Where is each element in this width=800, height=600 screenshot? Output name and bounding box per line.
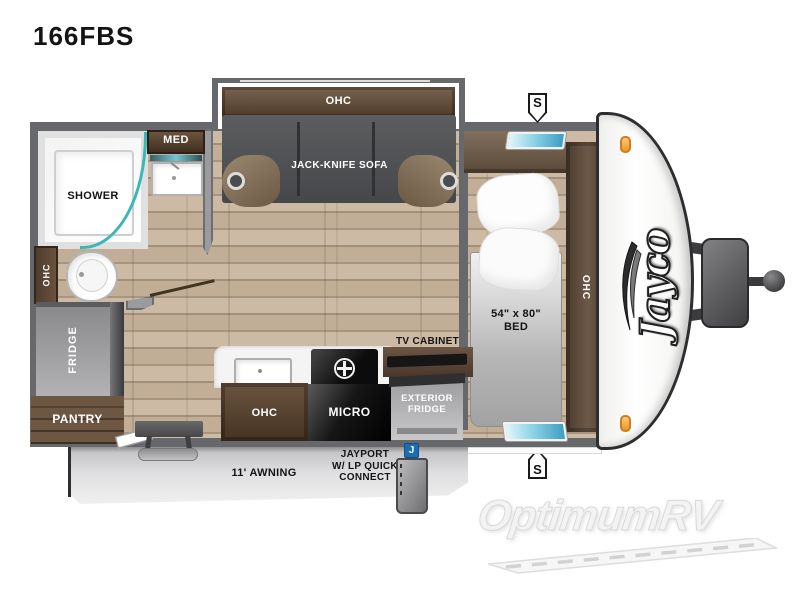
ohc-bath-cabinet: OHC	[34, 246, 58, 304]
watermark-text: OptimumRV	[475, 492, 796, 541]
wall-top-right	[465, 122, 610, 131]
page-title: 166FBS	[33, 22, 134, 52]
pantry-label: PANTRY	[31, 413, 124, 427]
speaker-icon-top: S	[528, 93, 547, 123]
marker-light-top-icon	[620, 136, 631, 153]
bed-pillow-bottom	[477, 226, 560, 292]
slideout-trim	[240, 80, 430, 82]
tv-cabinet-label: TV CABINET	[385, 336, 470, 348]
med-label: MED	[147, 134, 205, 147]
exterior-fridge-line2: FRIDGE	[391, 405, 463, 416]
sofa-seam-left	[297, 122, 300, 196]
entry-step-platform	[135, 421, 203, 437]
jayco-logo: Jayco	[628, 198, 684, 370]
sofa-grommet-right-icon	[440, 172, 458, 190]
window-bottom	[503, 422, 568, 441]
floorplan-canvas: 166FBS SHOWER MED OHC FRIDGE PANTRY OHC	[0, 0, 800, 600]
jayport-label: JAYPORT W/ LP QUICK CONNECT	[328, 449, 402, 484]
ohc-bath-label: OHC	[41, 264, 51, 287]
sofa-grommet-left-icon	[227, 172, 245, 190]
watermark-road-icon	[488, 538, 778, 579]
bed-label: 54" x 80" BED	[470, 308, 562, 333]
hitch-ball-icon	[763, 270, 785, 292]
jayport-line3: CONNECT	[328, 472, 402, 484]
bed-word-label: BED	[470, 321, 562, 334]
fridge-label-wrap: FRIDGE	[36, 302, 110, 398]
exterior-fridge-label: EXTERIOR FRIDGE	[391, 394, 463, 416]
fridge-door-edge	[110, 302, 124, 398]
jayport-icon: J	[404, 443, 419, 458]
entry-step-lower	[138, 448, 198, 461]
bed-size-label: 54" x 80"	[470, 308, 562, 321]
jayport-connector-ticks	[400, 464, 402, 498]
ohc-kitchen-label: OHC	[221, 407, 308, 420]
marker-light-bottom-icon	[620, 415, 631, 432]
microwave-label: MICRO	[308, 406, 391, 420]
jayport-line2: W/ LP QUICK	[328, 461, 402, 473]
body-skirt-strip	[452, 447, 602, 454]
awning-left-edge	[68, 447, 71, 497]
propane-tank-cover	[701, 238, 749, 328]
sofa-label: JACK-KNIFE SOFA	[262, 160, 417, 172]
kitchen-sink-drain	[258, 369, 262, 373]
speaker-letter: S	[528, 462, 547, 477]
toilet-flush-dot	[79, 272, 84, 277]
jayport-icon-letter: J	[409, 445, 415, 456]
med-shelf	[150, 155, 202, 161]
shower-label: SHOWER	[48, 190, 138, 203]
exterior-fridge-vent	[397, 428, 457, 434]
sofa-seam-right	[372, 122, 375, 196]
ohc-bed-label: OHC	[580, 274, 591, 299]
watermark: OptimumRV	[478, 492, 793, 587]
awning-label: 11' AWNING	[224, 467, 304, 480]
jayport-line1: JAYPORT	[328, 449, 402, 461]
fridge-label: FRIDGE	[67, 326, 79, 374]
jayco-logo-text: Jayco	[633, 229, 680, 338]
bath-sink-drain	[172, 176, 176, 180]
burner-icon	[334, 358, 355, 379]
speaker-letter: S	[528, 95, 547, 110]
ohc-sofa-label: OHC	[222, 95, 455, 108]
window-top	[506, 132, 566, 149]
